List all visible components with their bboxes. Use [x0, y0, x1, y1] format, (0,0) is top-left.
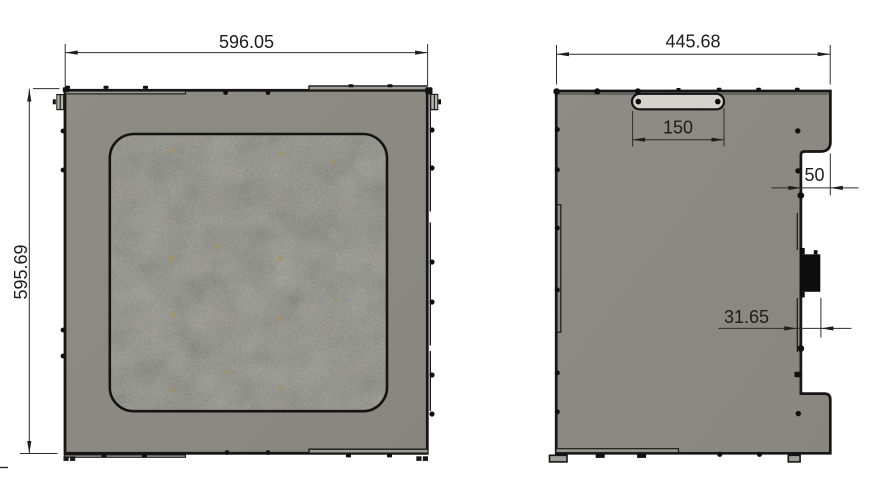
svg-text:150: 150 — [663, 117, 693, 137]
svg-text:595.69: 595.69 — [11, 244, 31, 299]
svg-text:445.68: 445.68 — [665, 32, 720, 52]
svg-text:596.05: 596.05 — [219, 32, 274, 52]
svg-text:50: 50 — [804, 165, 824, 185]
svg-text:31.65: 31.65 — [724, 307, 769, 327]
